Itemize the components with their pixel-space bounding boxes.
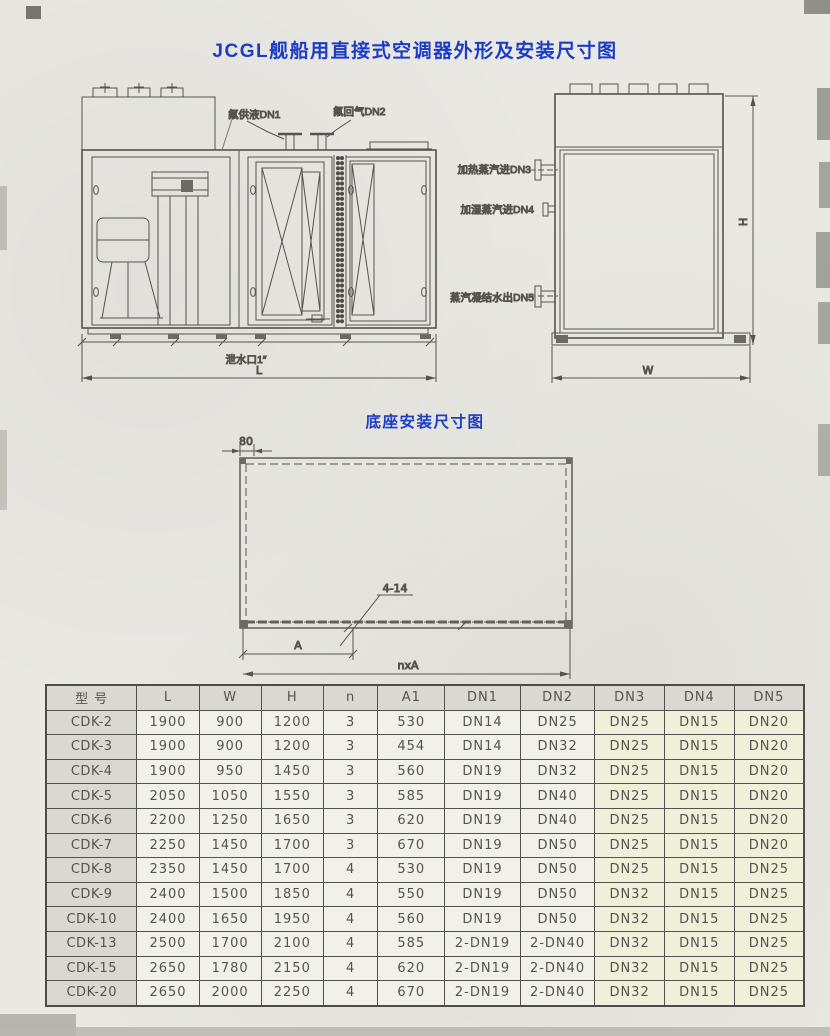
value-cell: DN40	[520, 808, 594, 833]
value-cell: DN20	[734, 784, 804, 809]
value-cell: DN19	[445, 833, 521, 858]
value-cell: DN15	[664, 882, 734, 907]
value-cell: DN19	[445, 858, 521, 883]
value-cell: DN25	[595, 710, 665, 735]
pipe-label-dn5: 蒸汽凝结水出DN5	[450, 291, 534, 304]
value-cell: 1450	[199, 833, 261, 858]
value-cell: DN15	[664, 710, 734, 735]
value-cell: DN20	[734, 833, 804, 858]
value-cell: DN32	[595, 981, 665, 1006]
value-cell: DN32	[520, 735, 594, 760]
model-cell: CDK-8	[46, 858, 137, 883]
value-cell: DN15	[664, 858, 734, 883]
value-cell: 900	[199, 710, 261, 735]
pitch-dim-label: A	[294, 639, 302, 652]
hole-callout-label: 4-14	[383, 582, 408, 595]
value-cell: DN15	[664, 784, 734, 809]
value-cell: DN15	[664, 981, 734, 1006]
value-cell: DN15	[664, 735, 734, 760]
dimension-table: 型 号 L W H n A1 DN1 DN2 DN3 DN4 DN5 CDK-2…	[45, 684, 805, 1007]
table-row: CDK-1325001700210045852-DN192-DN40DN32DN…	[46, 931, 804, 956]
value-cell: 1950	[261, 907, 323, 932]
value-cell: DN19	[445, 882, 521, 907]
model-cell: CDK-9	[46, 882, 137, 907]
value-cell: 4	[323, 931, 378, 956]
model-cell: CDK-13	[46, 931, 137, 956]
column-header-a1: A1	[378, 685, 445, 710]
value-cell: 1700	[261, 833, 323, 858]
dimension-table-body: CDK-2190090012003530DN14DN25DN25DN15DN20…	[46, 710, 804, 1006]
page-title: JCGL舰船用直接式空调器外形及安装尺寸图	[0, 36, 830, 63]
value-cell: 3	[323, 759, 378, 784]
column-header-w: W	[199, 685, 261, 710]
model-cell: CDK-6	[46, 808, 137, 833]
value-cell: 2-DN40	[520, 981, 594, 1006]
value-cell: 3	[323, 784, 378, 809]
value-cell: 2050	[137, 784, 199, 809]
value-cell: 4	[323, 858, 378, 883]
scanned-page: JCGL舰船用直接式空调器外形及安装尺寸图 底座安装尺寸图	[0, 0, 830, 1036]
value-cell: DN25	[734, 981, 804, 1006]
value-cell: 1500	[199, 882, 261, 907]
column-header-dn4: DN4	[664, 685, 734, 710]
scan-artifact	[804, 0, 830, 14]
width-dim-label: W	[643, 364, 654, 377]
value-cell: 2650	[137, 956, 199, 981]
value-cell: 620	[378, 956, 445, 981]
table-row: CDK-2026502000225046702-DN192-DN40DN32DN…	[46, 981, 804, 1006]
value-cell: 1900	[137, 759, 199, 784]
value-cell: DN32	[595, 907, 665, 932]
value-cell: DN20	[734, 735, 804, 760]
value-cell: DN50	[520, 882, 594, 907]
value-cell: 2-DN19	[445, 956, 521, 981]
value-cell: DN14	[445, 710, 521, 735]
table-row: CDK-1526501780215046202-DN192-DN40DN32DN…	[46, 956, 804, 981]
value-cell: 2250	[137, 833, 199, 858]
value-cell: DN15	[664, 931, 734, 956]
value-cell: 3	[323, 710, 378, 735]
value-cell: 1200	[261, 710, 323, 735]
technical-drawing: 氟供液DN1 氟回气DN2 泄水口1″ L	[0, 80, 830, 680]
value-cell: 1700	[199, 931, 261, 956]
length-dim-label: L	[256, 364, 263, 377]
value-cell: DN25	[734, 907, 804, 932]
value-cell: 2100	[261, 931, 323, 956]
value-cell: 1700	[261, 858, 323, 883]
value-cell: 1650	[261, 808, 323, 833]
pipe-label-dn2: 氟回气DN2	[333, 105, 386, 118]
value-cell: DN25	[595, 858, 665, 883]
value-cell: 1850	[261, 882, 323, 907]
value-cell: DN32	[595, 931, 665, 956]
value-cell: DN32	[520, 759, 594, 784]
value-cell: 2650	[137, 981, 199, 1006]
value-cell: 4	[323, 882, 378, 907]
value-cell: 4	[323, 956, 378, 981]
model-cell: CDK-2	[46, 710, 137, 735]
value-cell: DN15	[664, 808, 734, 833]
value-cell: 2-DN40	[520, 931, 594, 956]
column-header-dn5: DN5	[734, 685, 804, 710]
model-cell: CDK-7	[46, 833, 137, 858]
table-row: CDK-3190090012003454DN14DN32DN25DN15DN20	[46, 735, 804, 760]
table-row: CDK-4190095014503560DN19DN32DN25DN15DN20	[46, 759, 804, 784]
value-cell: 2000	[199, 981, 261, 1006]
value-cell: 4	[323, 907, 378, 932]
model-cell: CDK-20	[46, 981, 137, 1006]
value-cell: DN19	[445, 907, 521, 932]
value-cell: DN32	[595, 882, 665, 907]
value-cell: 2-DN19	[445, 981, 521, 1006]
table-row: CDK-82350145017004530DN19DN50DN25DN15DN2…	[46, 858, 804, 883]
side-view: 加热蒸汽进DN3 加湿蒸汽进DN4 蒸汽凝结水出DN5 W H	[450, 84, 758, 383]
value-cell: 454	[378, 735, 445, 760]
scan-artifact	[0, 1027, 830, 1036]
value-cell: 1450	[261, 759, 323, 784]
value-cell: 3	[323, 833, 378, 858]
value-cell: 1780	[199, 956, 261, 981]
table-row: CDK-72250145017003670DN19DN50DN25DN15DN2…	[46, 833, 804, 858]
value-cell: DN20	[734, 759, 804, 784]
value-cell: 3	[323, 735, 378, 760]
dimension-table-section: 型 号 L W H n A1 DN1 DN2 DN3 DN4 DN5 CDK-2…	[45, 684, 805, 1007]
value-cell: DN25	[595, 833, 665, 858]
pipe-label-dn3: 加热蒸汽进DN3	[457, 163, 531, 176]
column-header-dn3: DN3	[595, 685, 665, 710]
value-cell: 2400	[137, 907, 199, 932]
table-row: CDK-102400165019504560DN19DN50DN32DN15DN…	[46, 907, 804, 932]
value-cell: 1200	[261, 735, 323, 760]
value-cell: 2250	[261, 981, 323, 1006]
value-cell: DN32	[595, 956, 665, 981]
value-cell: 585	[378, 784, 445, 809]
table-header-row: 型 号 L W H n A1 DN1 DN2 DN3 DN4 DN5	[46, 685, 804, 710]
value-cell: 670	[378, 981, 445, 1006]
value-cell: 550	[378, 882, 445, 907]
value-cell: DN25	[734, 882, 804, 907]
value-cell: DN25	[734, 956, 804, 981]
value-cell: DN20	[734, 808, 804, 833]
value-cell: 670	[378, 833, 445, 858]
value-cell: DN25	[520, 710, 594, 735]
value-cell: DN15	[664, 956, 734, 981]
value-cell: 2200	[137, 808, 199, 833]
value-cell: DN25	[734, 858, 804, 883]
value-cell: 3	[323, 808, 378, 833]
value-cell: DN25	[595, 735, 665, 760]
value-cell: DN25	[734, 931, 804, 956]
model-cell: CDK-5	[46, 784, 137, 809]
value-cell: 560	[378, 759, 445, 784]
model-cell: CDK-3	[46, 735, 137, 760]
height-dim-label: H	[737, 218, 750, 226]
column-header-dn1: DN1	[445, 685, 521, 710]
value-cell: DN15	[664, 833, 734, 858]
value-cell: 620	[378, 808, 445, 833]
value-cell: DN19	[445, 808, 521, 833]
value-cell: 950	[199, 759, 261, 784]
value-cell: DN20	[734, 710, 804, 735]
value-cell: 4	[323, 981, 378, 1006]
pipe-label-dn1: 氟供液DN1	[228, 108, 281, 121]
base-plan-view: 80 4-14 A nxA	[222, 435, 572, 679]
value-cell: 560	[378, 907, 445, 932]
table-row: CDK-92400150018504550DN19DN50DN32DN15DN2…	[46, 882, 804, 907]
value-cell: DN15	[664, 907, 734, 932]
column-header-dn2: DN2	[520, 685, 594, 710]
value-cell: 1450	[199, 858, 261, 883]
model-cell: CDK-4	[46, 759, 137, 784]
model-cell: CDK-15	[46, 956, 137, 981]
value-cell: 530	[378, 858, 445, 883]
front-view: 氟供液DN1 氟回气DN2 泄水口1″ L	[78, 83, 436, 382]
value-cell: 900	[199, 735, 261, 760]
value-cell: 2350	[137, 858, 199, 883]
value-cell: DN19	[445, 759, 521, 784]
value-cell: 2-DN40	[520, 956, 594, 981]
value-cell: DN14	[445, 735, 521, 760]
scan-artifact	[26, 6, 41, 19]
column-header-n: n	[323, 685, 378, 710]
scan-artifact	[0, 1014, 76, 1036]
value-cell: 2150	[261, 956, 323, 981]
value-cell: DN40	[520, 784, 594, 809]
value-cell: DN50	[520, 858, 594, 883]
value-cell: 1250	[199, 808, 261, 833]
table-row: CDK-62200125016503620DN19DN40DN25DN15DN2…	[46, 808, 804, 833]
column-header-l: L	[137, 685, 199, 710]
value-cell: DN15	[664, 759, 734, 784]
value-cell: 1650	[199, 907, 261, 932]
table-row: CDK-52050105015503585DN19DN40DN25DN15DN2…	[46, 784, 804, 809]
value-cell: DN25	[595, 808, 665, 833]
value-cell: DN25	[595, 759, 665, 784]
corner-offset-label: 80	[239, 435, 253, 448]
model-cell: CDK-10	[46, 907, 137, 932]
value-cell: 1900	[137, 710, 199, 735]
column-header-model: 型 号	[46, 685, 137, 710]
value-cell: DN50	[520, 833, 594, 858]
value-cell: 585	[378, 931, 445, 956]
total-pitch-label: nxA	[397, 659, 418, 672]
value-cell: DN25	[595, 784, 665, 809]
table-row: CDK-2190090012003530DN14DN25DN25DN15DN20	[46, 710, 804, 735]
value-cell: 2500	[137, 931, 199, 956]
value-cell: 2-DN19	[445, 931, 521, 956]
value-cell: 1900	[137, 735, 199, 760]
value-cell: 530	[378, 710, 445, 735]
value-cell: 1550	[261, 784, 323, 809]
value-cell: 1050	[199, 784, 261, 809]
pipe-label-dn4: 加湿蒸汽进DN4	[460, 203, 534, 216]
value-cell: DN50	[520, 907, 594, 932]
value-cell: DN19	[445, 784, 521, 809]
value-cell: 2400	[137, 882, 199, 907]
column-header-h: H	[261, 685, 323, 710]
